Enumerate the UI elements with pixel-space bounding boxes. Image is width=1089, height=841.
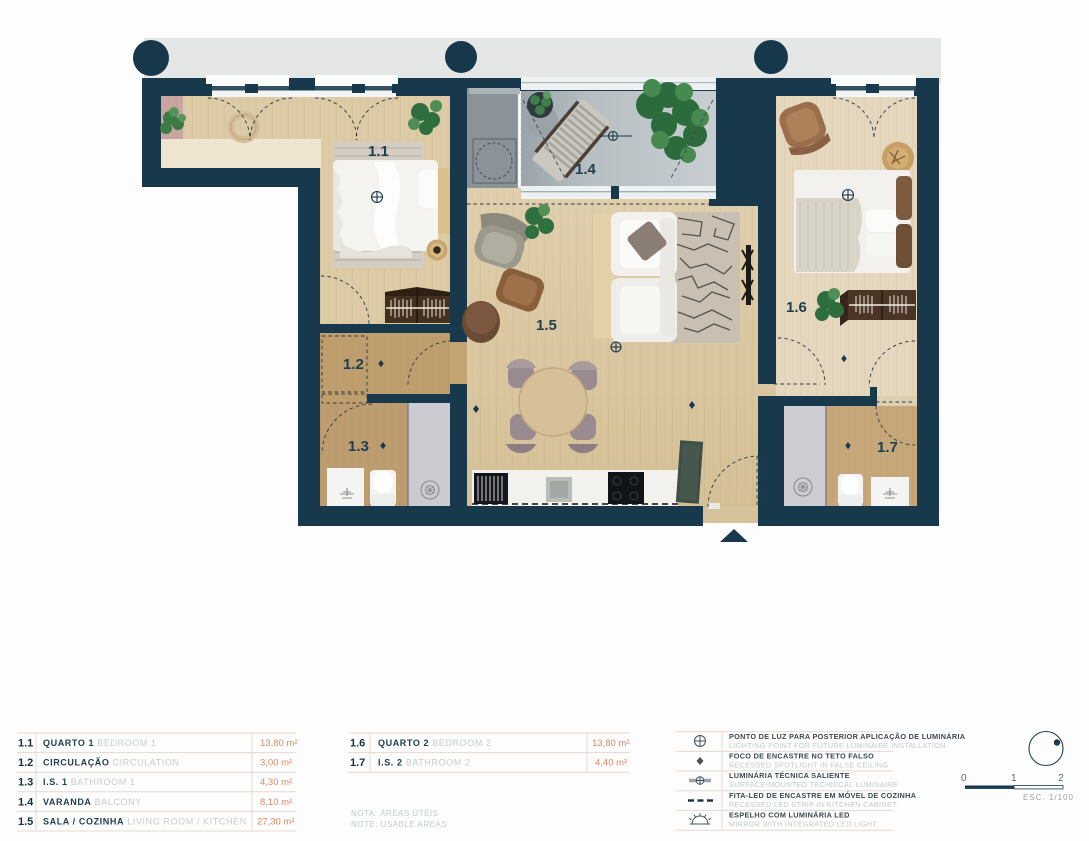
svg-text:1.6: 1.6 [786,299,807,316]
svg-text:FOCO DE ENCASTRE NO TETO FALSO: FOCO DE ENCASTRE NO TETO FALSO [729,752,874,761]
svg-text:QUARTO 1 BEDROOM 1: QUARTO 1 BEDROOM 1 [43,738,157,748]
svg-text:SALA / COZINHA LIVING ROOM / K: SALA / COZINHA LIVING ROOM / KITCHEN [43,816,247,826]
svg-text:1.1: 1.1 [18,738,33,750]
svg-text:2: 2 [1058,773,1064,784]
svg-text:1.3: 1.3 [18,777,33,789]
svg-text:1.7: 1.7 [350,757,365,769]
svg-text:FITA-LED DE ENCASTRE EM MÓVEL: FITA-LED DE ENCASTRE EM MÓVEL DE COZINHA [729,791,917,800]
svg-text:NOTA: ÁREAS ÚTEIS: NOTA: ÁREAS ÚTEIS [351,809,438,818]
svg-text:LUMINÁRIA TÉCNICA SALIENTE: LUMINÁRIA TÉCNICA SALIENTE [729,771,850,780]
svg-text:QUARTO 2 BEDROOM 2: QUARTO 2 BEDROOM 2 [378,738,492,748]
svg-text:RECESSED LED STRIP IN KITCHEN: RECESSED LED STRIP IN KITCHEN CABINET [729,800,897,809]
svg-text:1.4: 1.4 [18,796,34,808]
svg-text:I.S. 2 BATHROOM 2: I.S. 2 BATHROOM 2 [378,758,471,768]
svg-text:1: 1 [1011,773,1017,784]
svg-text:CIRCULAÇÃO CIRCULATION: CIRCULAÇÃO CIRCULATION [43,758,180,768]
svg-text:NOTE: USABLE AREAS: NOTE: USABLE AREAS [351,820,447,829]
svg-text:MIRROR WITH INTEGRATED LED LIG: MIRROR WITH INTEGRATED LED LIGHT [729,820,877,829]
svg-text:1.4: 1.4 [575,161,597,178]
svg-text:SURFACE-MOUNTED TECHNICAL LUMI: SURFACE-MOUNTED TECHNICAL LUMINAIRE [729,780,898,789]
svg-text:ESC. 1/100: ESC. 1/100 [1023,793,1074,802]
svg-text:VARANDA BALCONY: VARANDA BALCONY [43,797,142,807]
svg-text:1.2: 1.2 [343,356,364,373]
svg-text:0: 0 [961,773,967,784]
svg-text:RECESSED SPOTLIGHT IN FALSE CE: RECESSED SPOTLIGHT IN FALSE CEILING [729,761,888,770]
svg-text:13,80 m²: 13,80 m² [260,738,298,749]
svg-text:13,80 m²: 13,80 m² [592,738,630,749]
svg-text:ESPELHO COM LUMINÁRIA LED: ESPELHO COM LUMINÁRIA LED [729,811,850,820]
svg-text:1.1: 1.1 [368,143,389,160]
svg-text:I.S. 1 BATHROOM 1: I.S. 1 BATHROOM 1 [43,777,136,787]
svg-text:4,40 m²: 4,40 m² [595,758,627,769]
svg-text:8,10 m²: 8,10 m² [260,797,292,808]
svg-text:LIGHTING POINT FOR FUTURE LUMI: LIGHTING POINT FOR FUTURE LUMINAIRE INST… [729,741,946,750]
svg-text:1.3: 1.3 [348,438,369,455]
svg-text:1.5: 1.5 [18,816,33,828]
svg-text:1.2: 1.2 [18,757,33,769]
svg-text:1.7: 1.7 [877,439,898,456]
svg-text:3,00 m²: 3,00 m² [260,758,292,769]
svg-text:1.5: 1.5 [536,317,557,334]
svg-text:27,30 m²: 27,30 m² [257,816,295,827]
svg-text:4,30 m²: 4,30 m² [260,777,292,788]
svg-text:PONTO DE LUZ PARA POSTERIOR AP: PONTO DE LUZ PARA POSTERIOR APLICAÇÃO DE… [729,732,966,741]
svg-text:1.6: 1.6 [350,738,365,750]
